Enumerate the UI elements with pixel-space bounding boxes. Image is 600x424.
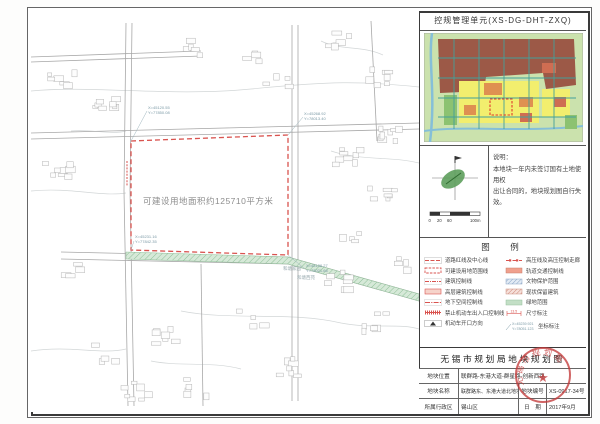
highrise-line-swatch xyxy=(424,288,442,295)
svg-text:Y=78013.40: Y=78013.40 xyxy=(304,116,326,121)
notes-line: 出让合同的，地块规划图自行失效。 xyxy=(493,186,587,208)
legend-item: 道路红线及中心线 xyxy=(424,256,488,264)
svg-text:X=45239.921: X=45239.921 xyxy=(512,322,533,326)
title-block: 无锡市规划局地块规划图 地块位置 联群路-东港大道-群星路-创新西路 地块名称 … xyxy=(419,347,586,412)
place-label: 和塘家园 xyxy=(283,265,301,272)
coordinate-swatch: X=45239.921Y=78051.123 xyxy=(505,320,535,332)
legend-item: 高层建筑控制线 xyxy=(424,288,483,296)
north-arrow-icon: 0 20 60 100m xyxy=(424,150,486,232)
legend-item: 建筑控制线 xyxy=(424,277,472,285)
title-block-row: 地块名称 联群路东、东港大道北地块 地块编号 XS-0917-34号 xyxy=(419,384,586,399)
section-divider xyxy=(420,30,586,31)
section-divider xyxy=(420,145,586,146)
notes-line: 本地块一年内未签订国有土地使用权 xyxy=(493,164,587,186)
svg-text:13.5: 13.5 xyxy=(511,310,518,314)
svg-text:Y=78051.123: Y=78051.123 xyxy=(512,327,533,331)
dimension-swatch: 13.5 xyxy=(505,309,523,316)
zoning-minimap xyxy=(424,33,583,142)
legend-item: 机动车开口方向 xyxy=(424,319,483,327)
plan-sheet: X=45120.55Y=77850.08 X=45268.92Y=78013.4… xyxy=(0,0,600,424)
title-block-row: 地块位置 联群路-东港大道-群星路-创新西路 xyxy=(419,369,586,384)
notes-block: 说明： 本地块一年内未签订国有土地使用权 出让合同的，地块规划图自行失效。 xyxy=(489,148,589,238)
control-unit-title: 控规管理单元(XS-DG-DHT-ZXQ) xyxy=(420,11,586,30)
sheet-title: 无锡市规划局地块规划图 xyxy=(419,348,586,369)
retained-building-swatch xyxy=(505,288,523,295)
section-divider xyxy=(420,237,586,238)
svg-text:Y=77850.08: Y=77850.08 xyxy=(148,110,170,115)
road-redline-swatch xyxy=(424,257,442,264)
svg-text:Y=77842.35: Y=77842.35 xyxy=(135,239,157,244)
legend-item: 地下空间控制线 xyxy=(424,298,483,306)
legend-item: 绿地范围 xyxy=(505,298,548,306)
place-label: 和塘西苑 xyxy=(297,274,315,281)
svg-text:Y=78021.66: Y=78021.66 xyxy=(306,268,328,273)
legend-item: 高压线及高压控制走廊 xyxy=(505,256,580,264)
parcel-area-label: 可建设用地面积约125710平方米 xyxy=(143,196,273,206)
svg-text:60: 60 xyxy=(447,218,452,223)
legend-title: 图 例 xyxy=(420,241,586,253)
legend-item: 轨道交通控制线 xyxy=(505,267,564,275)
heritage-zone-swatch xyxy=(505,278,523,285)
hv-line-swatch xyxy=(505,257,523,264)
legend-item: 现状保留建筑 xyxy=(505,288,558,296)
no-entry-line-swatch xyxy=(424,309,442,316)
base-map: X=45120.55Y=77850.08 X=45268.92Y=78013.4… xyxy=(31,11,419,412)
legend-item: 可建设用地范围线 xyxy=(424,267,488,275)
green-zone-swatch xyxy=(505,299,523,306)
building-line-swatch xyxy=(424,278,442,285)
title-block-row: 所属行政区 锡山区 日 期 2017年9月 xyxy=(419,399,586,414)
legend-item: X=45239.921Y=78051.123 坐标标注 xyxy=(505,320,560,332)
legend-item: 禁止机动车出入口控制线 xyxy=(424,309,504,317)
scale-bar: 0 20 60 100m xyxy=(429,212,481,223)
vehicle-opening-swatch xyxy=(424,320,442,327)
svg-text:20: 20 xyxy=(437,218,442,223)
svg-text:0: 0 xyxy=(429,218,432,223)
legend-item: 13.5 尺寸标注 xyxy=(505,309,548,317)
underground-line-swatch xyxy=(424,299,442,306)
notes-heading: 说明： xyxy=(493,152,587,163)
svg-text:100m: 100m xyxy=(470,218,481,223)
rail-line-swatch xyxy=(505,267,523,274)
parcel-line-swatch xyxy=(424,267,442,274)
legend-item: 文物保护范围 xyxy=(505,277,558,285)
